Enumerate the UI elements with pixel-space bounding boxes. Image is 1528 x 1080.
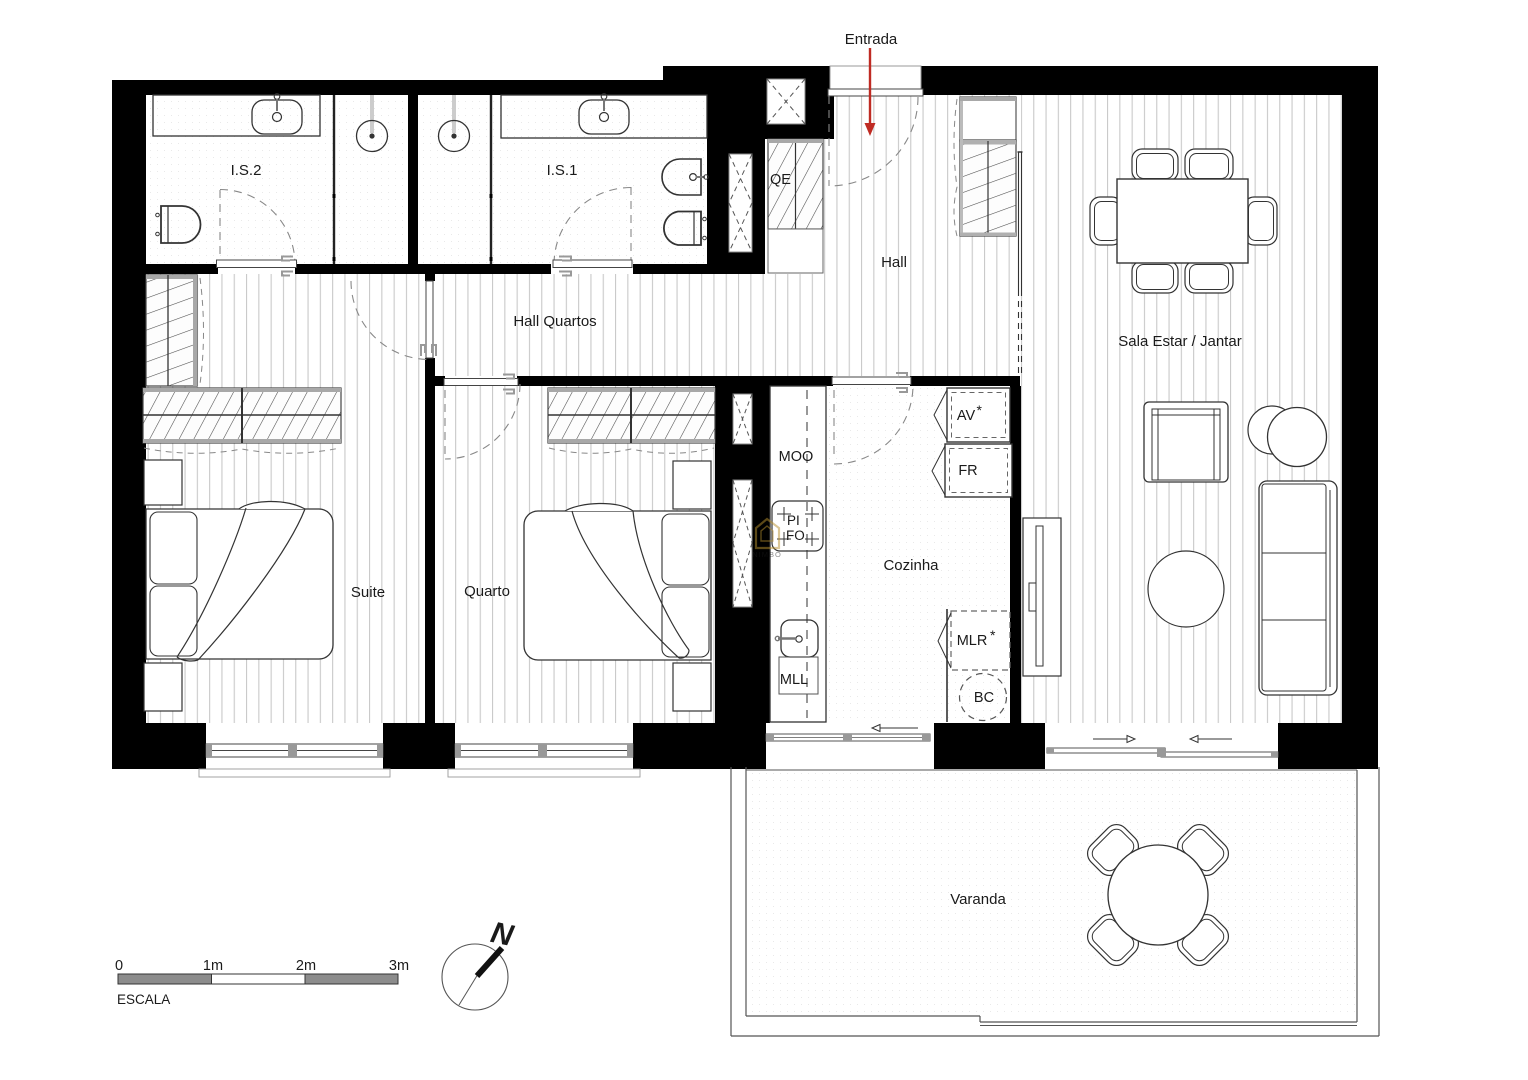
svg-text:NIMBO: NIMBO	[752, 550, 782, 559]
svg-text:Suite: Suite	[351, 584, 385, 601]
svg-text:MLR: MLR	[957, 633, 988, 649]
svg-text:FO: FO	[786, 528, 805, 543]
svg-text:Hall Quartos: Hall Quartos	[513, 313, 596, 330]
svg-text:QE: QE	[770, 172, 791, 188]
svg-text:Sala Estar / Jantar: Sala Estar / Jantar	[1118, 333, 1241, 350]
svg-text:Cozinha: Cozinha	[883, 557, 939, 574]
svg-text:*: *	[990, 627, 996, 643]
svg-text:MOO: MOO	[779, 449, 814, 465]
svg-text:AV: AV	[957, 408, 976, 424]
svg-text:PI: PI	[787, 513, 800, 528]
svg-text:*: *	[977, 402, 983, 418]
svg-text:2m: 2m	[296, 958, 316, 974]
svg-text:1m: 1m	[203, 958, 223, 974]
svg-text:Hall: Hall	[881, 254, 907, 271]
svg-text:Entrada: Entrada	[845, 31, 898, 48]
svg-text:I.S.2: I.S.2	[231, 162, 262, 179]
svg-text:Quarto: Quarto	[464, 583, 510, 600]
svg-text:MLL: MLL	[780, 672, 808, 688]
svg-text:3m: 3m	[389, 958, 409, 974]
svg-text:0: 0	[115, 958, 123, 974]
svg-text:BC: BC	[974, 690, 994, 706]
svg-text:Varanda: Varanda	[950, 891, 1006, 908]
svg-text:ESCALA: ESCALA	[117, 992, 170, 1007]
svg-text:I.S.1: I.S.1	[547, 162, 578, 179]
svg-text:FR: FR	[958, 463, 977, 479]
